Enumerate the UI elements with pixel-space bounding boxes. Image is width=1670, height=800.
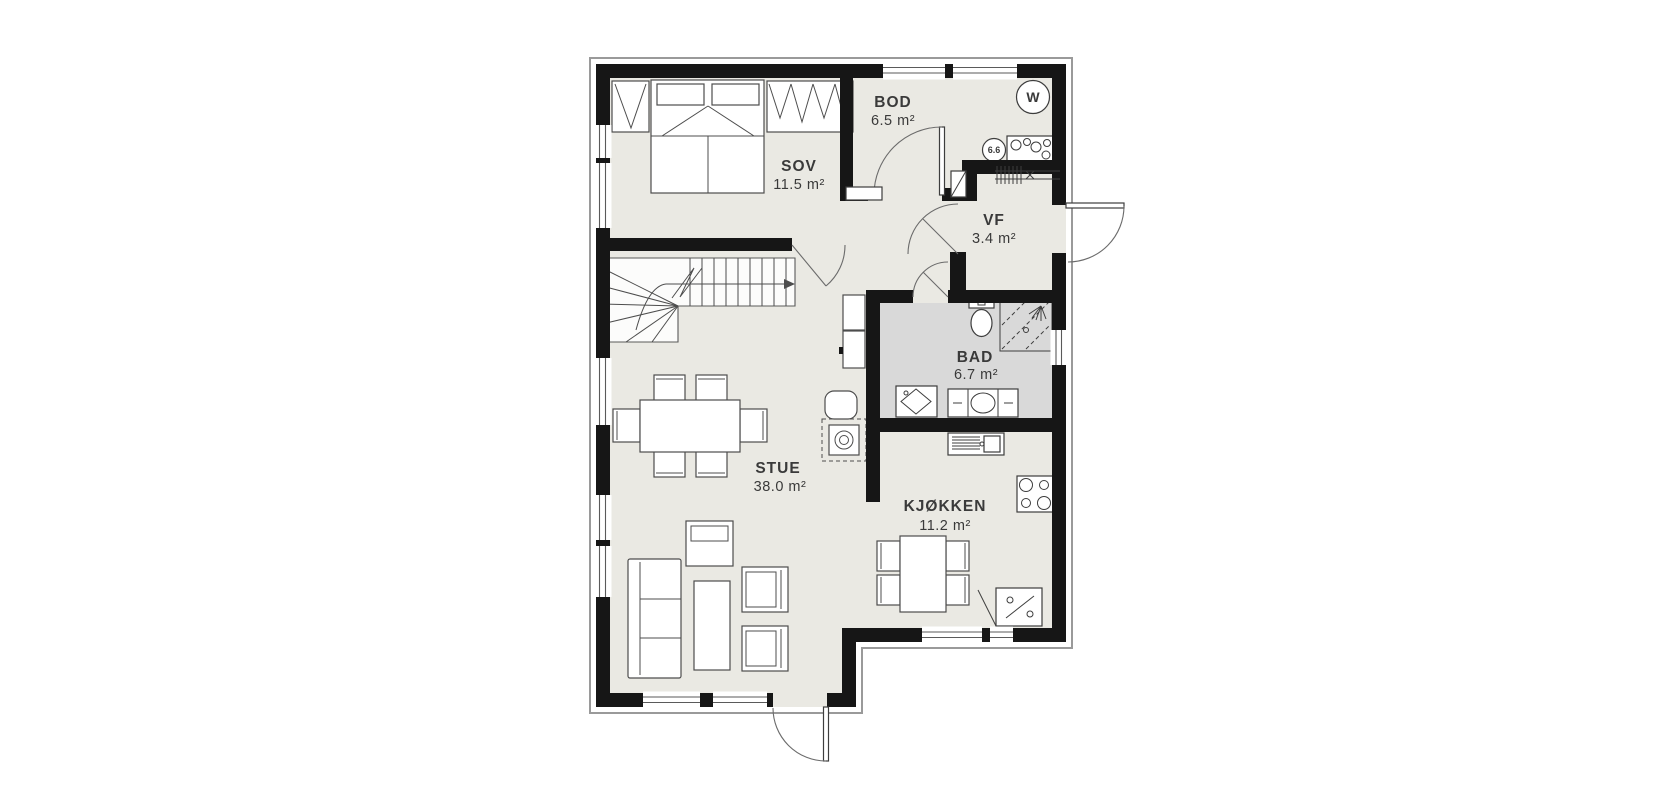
water-heater-label: W — [1026, 89, 1040, 105]
sofa — [628, 559, 681, 678]
armchair-top — [742, 567, 788, 612]
window-stue-3 — [595, 546, 612, 597]
window-stue-1 — [595, 358, 612, 425]
double-bed — [651, 80, 764, 193]
window-sov-1 — [595, 125, 612, 158]
toilet-icon — [969, 299, 994, 337]
bod-name: BOD — [874, 94, 911, 111]
window-bod-1 — [883, 63, 945, 80]
floor-plan-drawing: W 6.6 — [0, 0, 1670, 800]
bad-area: 6.7 m² — [954, 367, 998, 383]
bathroom-vanity — [948, 389, 1018, 417]
kjokken-name: KJØKKEN — [904, 498, 987, 515]
coffee-table — [694, 581, 730, 670]
utility-sink-unit — [1007, 136, 1056, 163]
vf-area: 3.4 m² — [972, 231, 1016, 247]
cooktop-icon — [1017, 476, 1053, 512]
hall-threshold-shelf — [846, 187, 882, 200]
sov-area: 11.5 m² — [773, 177, 825, 193]
window-kitchen-2 — [990, 627, 1013, 644]
door-entry — [1066, 203, 1124, 262]
tank-icon: 6.6 — [983, 139, 1006, 162]
fireplace-chair — [825, 391, 857, 419]
door-stue-exterior — [773, 707, 829, 761]
window-bod-2 — [953, 63, 1017, 80]
window-bad — [1051, 330, 1068, 365]
bedroom-wardrobe-left — [612, 81, 649, 132]
tank-label: 6.6 — [988, 145, 1001, 155]
armchair-bottom — [742, 626, 788, 671]
bad-name: BAD — [957, 349, 994, 366]
electrical-cabinet-icon — [951, 171, 966, 197]
fireplace-icon — [822, 419, 866, 461]
washing-machine-icon — [896, 386, 937, 417]
window-stue-2 — [595, 495, 612, 540]
stue-area: 38.0 m² — [754, 479, 807, 495]
stue-name: STUE — [755, 460, 800, 477]
bod-area: 6.5 m² — [871, 113, 915, 129]
window-kitchen-1 — [922, 627, 982, 644]
water-heater-icon: W — [1017, 81, 1050, 114]
kjokken-area: 11.2 m² — [919, 518, 971, 534]
window-stue-bottom-1 — [643, 692, 700, 709]
kitchen-sink — [948, 433, 1004, 455]
window-sov-2 — [595, 163, 612, 228]
vf-name: VF — [983, 212, 1005, 229]
sov-name: SOV — [781, 158, 817, 175]
hall-cabinets — [839, 295, 865, 368]
tv-bench — [686, 521, 733, 566]
window-stue-bottom-2 — [713, 692, 767, 709]
floor-plan-page: W 6.6 — [0, 0, 1670, 800]
